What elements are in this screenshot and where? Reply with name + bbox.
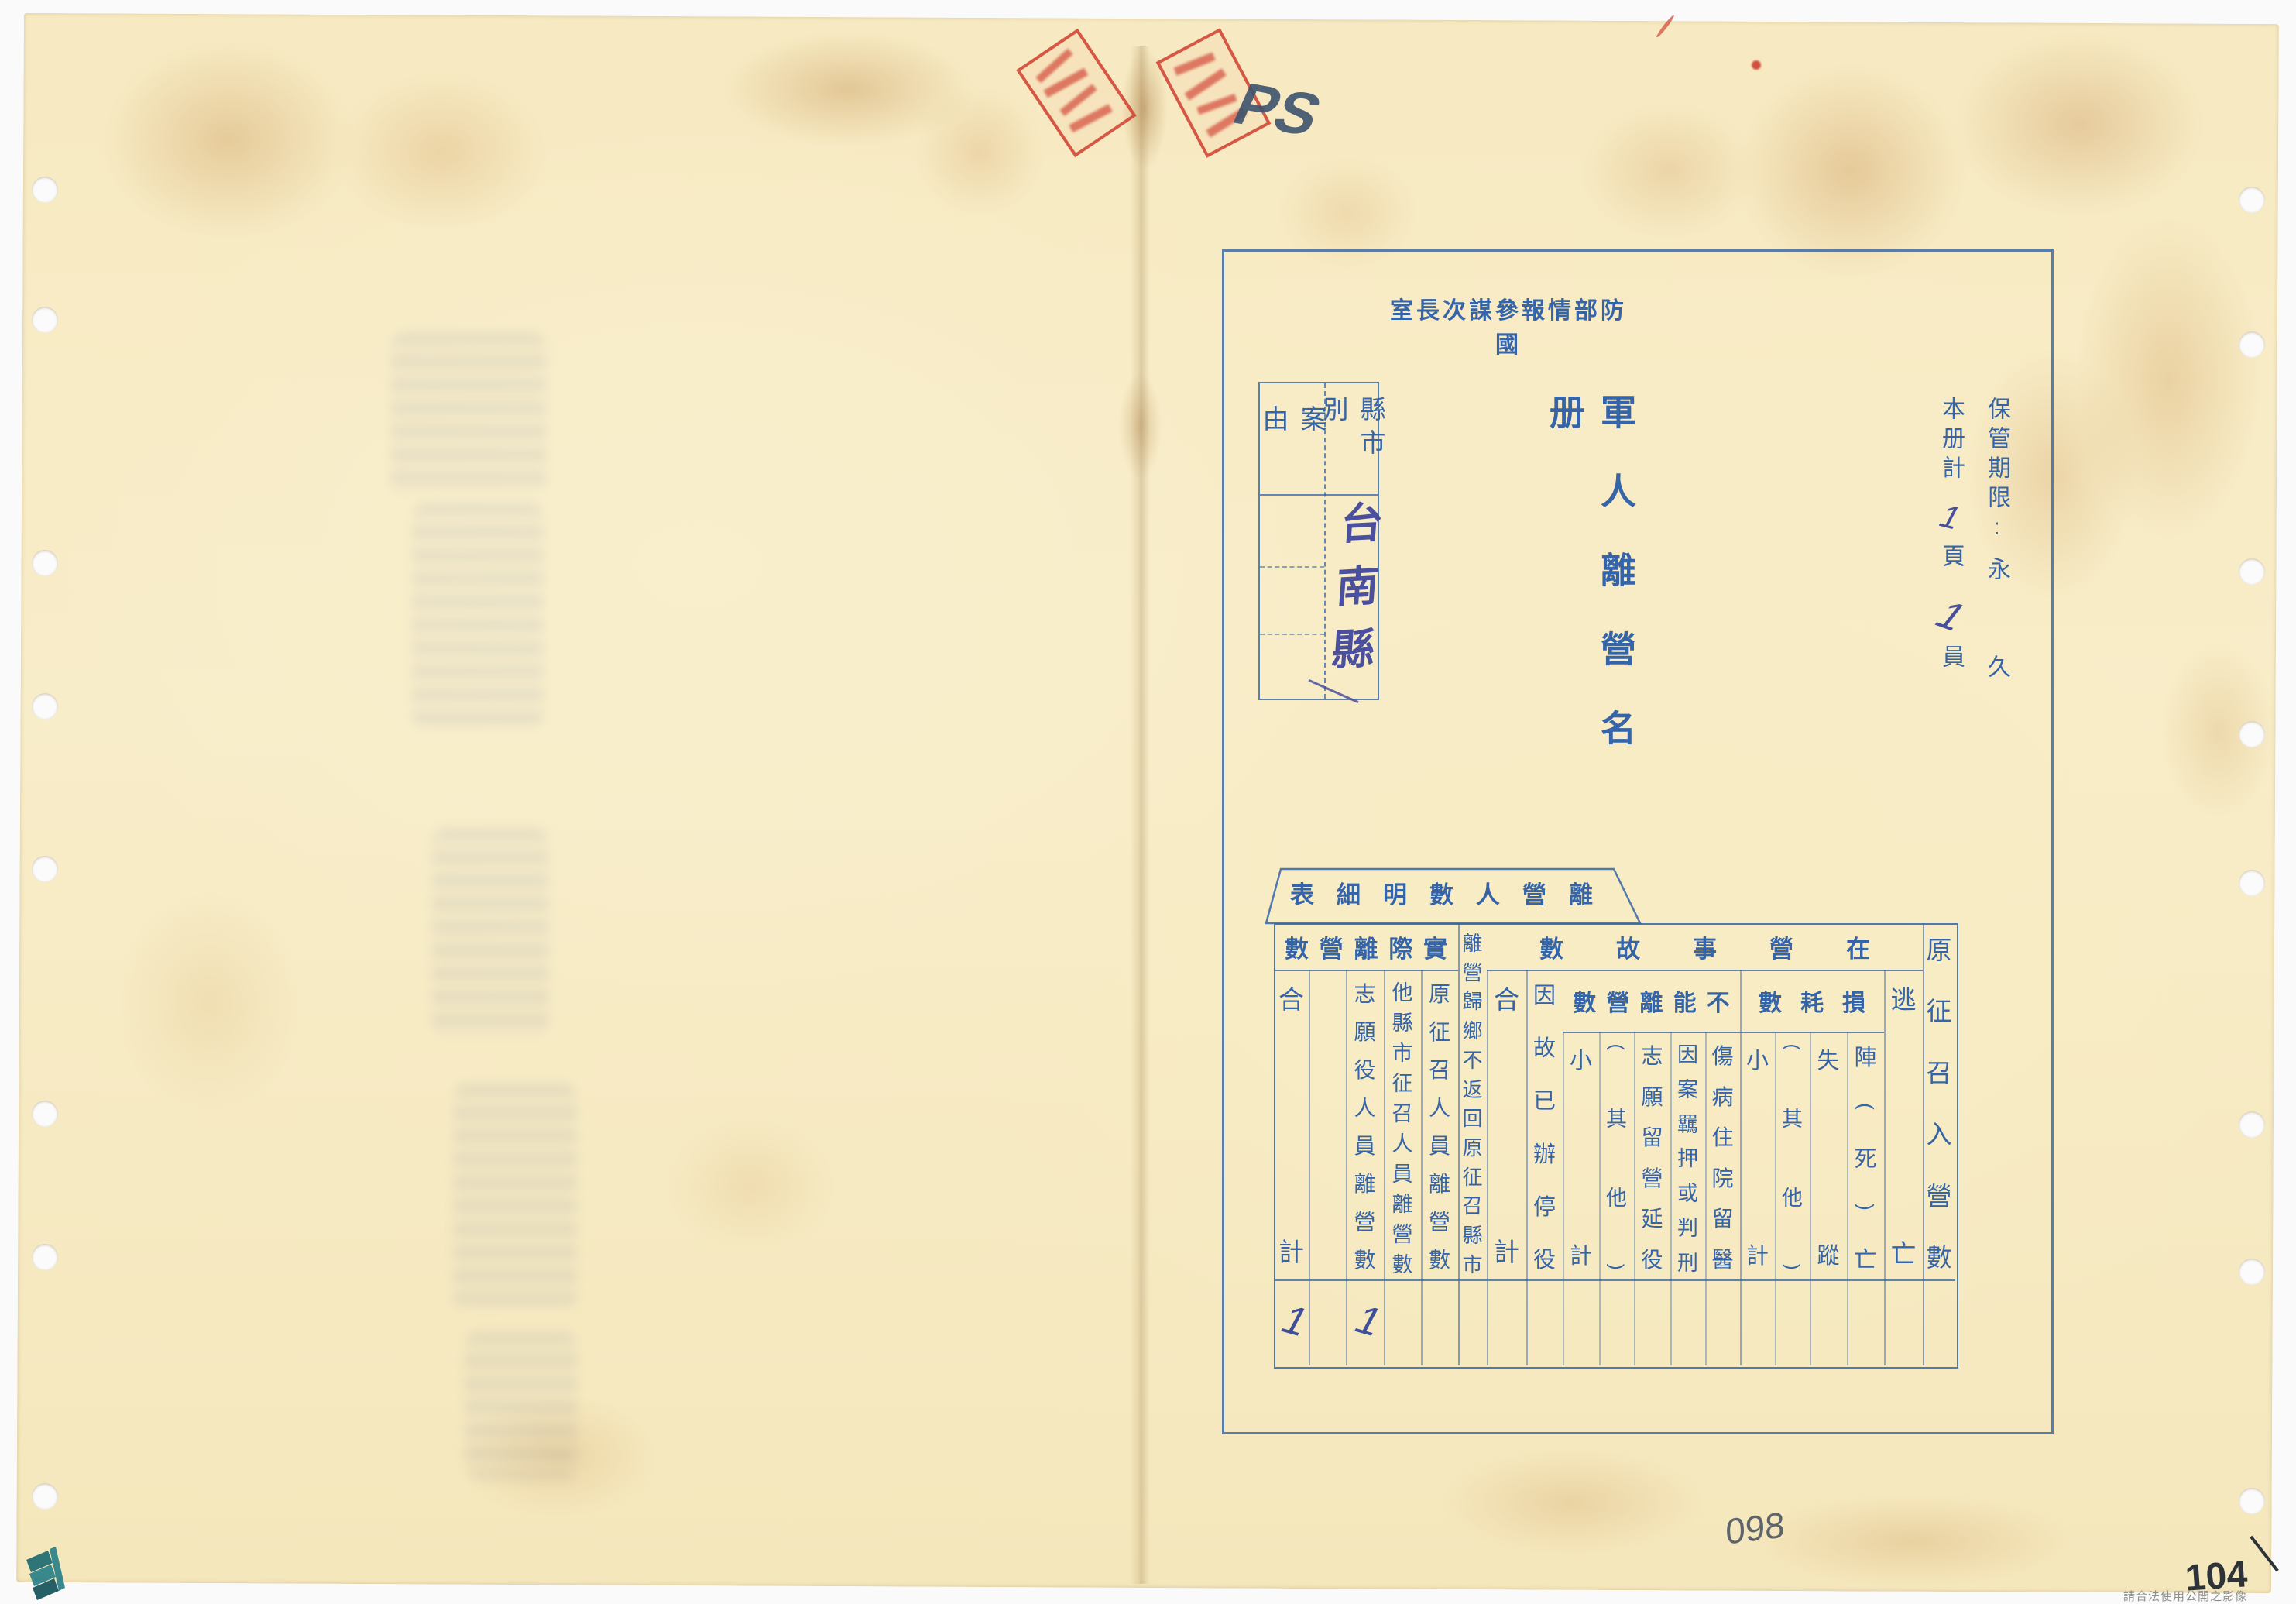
label-char: 蹤 — [1817, 1238, 1839, 1270]
group-header-char: 營 — [1769, 929, 1793, 964]
case-subject-label: 案由 — [1271, 405, 1314, 479]
label-char: 故 — [1533, 1030, 1556, 1063]
label-char: 人 — [1354, 1091, 1375, 1122]
label-char: 他 — [1606, 1181, 1627, 1211]
label-char: 召 — [1392, 1097, 1413, 1127]
label-char: 志 — [1354, 977, 1375, 1008]
label-char: 數 — [1392, 1248, 1413, 1278]
ink-bleed-through — [391, 333, 546, 496]
label-char: 病 — [1711, 1080, 1733, 1111]
label-char: 原 — [1462, 1132, 1482, 1161]
punch-hole — [2239, 187, 2265, 213]
volume-page-unit: 頁 — [1934, 544, 1968, 573]
label-char: 市 — [1462, 1249, 1482, 1278]
punch-hole — [2239, 721, 2265, 747]
label-char: ( — [1785, 1044, 1800, 1050]
label-char: 或 — [1677, 1176, 1698, 1207]
roster-title: 軍人離營名册 — [1569, 393, 1612, 849]
group-header-char: 營 — [1606, 984, 1629, 1018]
label-char: 陣 — [1854, 1039, 1876, 1072]
county-category-label: 縣市別 — [1334, 396, 1370, 486]
county-handwritten-value: 台南縣 — [1324, 500, 1381, 696]
punch-hole — [32, 693, 58, 720]
label-char: 留 — [1711, 1202, 1733, 1233]
table-column-label-cannot-subtotal: 小計 — [1563, 1042, 1599, 1270]
punch-hole — [32, 550, 58, 576]
table-column-label-actual-total: 合計 — [1274, 979, 1309, 1269]
label-char: 失 — [1817, 1042, 1839, 1075]
punch-hole — [32, 856, 58, 882]
label-char: 羈 — [1677, 1108, 1698, 1138]
label-char: 逃 — [1891, 979, 1917, 1016]
ink-bleed-through — [453, 1084, 577, 1309]
punch-hole — [2239, 331, 2265, 358]
county-category-text: 縣市別 — [1315, 396, 1389, 486]
label-char: 亡 — [1891, 1233, 1917, 1270]
label-char: 計 — [1278, 1231, 1304, 1269]
table-column-label-detained: 因案羈押或判刑 — [1670, 1038, 1705, 1276]
group-header-char: 不 — [1707, 984, 1730, 1018]
label-char: 縣 — [1392, 1006, 1413, 1036]
label-char: 離 — [1429, 1167, 1450, 1198]
label-char: ( — [1858, 1103, 1874, 1110]
punch-hole — [32, 1101, 58, 1127]
group-header-char: 際 — [1388, 929, 1412, 964]
label-char: 其 — [1606, 1102, 1627, 1132]
table-column-label-orig-conscript-leave: 原征召人員離營數 — [1421, 977, 1458, 1274]
label-char: 小 — [1570, 1042, 1592, 1075]
table-column-label-returned-home: 離營歸鄉不返回原征召縣市 — [1458, 928, 1487, 1278]
group-header-char: 數 — [1759, 984, 1782, 1018]
label-char: 離 — [1462, 928, 1482, 957]
label-char: 人 — [1429, 1091, 1450, 1122]
label-char: 他 — [1782, 1181, 1803, 1211]
label-char: 征 — [1927, 991, 1952, 1028]
label-char: 住 — [1711, 1121, 1733, 1152]
label-char: 合 — [1278, 979, 1304, 1016]
label-char: 役 — [1354, 1053, 1375, 1084]
table-column-label-hospitalized: 傷病住院留醫 — [1705, 1039, 1740, 1274]
label-char: 計 — [1494, 1231, 1519, 1269]
table-column-label-missing: 失蹤 — [1810, 1042, 1847, 1270]
label-char: 停 — [1533, 1189, 1556, 1221]
volume-person-unit: 員 — [1934, 644, 1968, 674]
label-char: 志 — [1641, 1039, 1663, 1070]
label-char: 召 — [1462, 1190, 1482, 1219]
label-char: 鄉 — [1462, 1015, 1482, 1044]
label-char: 數 — [1927, 1237, 1952, 1274]
label-char: ) — [1609, 1263, 1624, 1269]
label-char: 院 — [1711, 1162, 1733, 1193]
label-char: 市 — [1392, 1036, 1413, 1066]
group-header-char: 營 — [1320, 929, 1344, 964]
label-char: 征 — [1462, 1162, 1482, 1190]
label-char: 小 — [1746, 1042, 1769, 1075]
case-box-rule — [1260, 494, 1378, 496]
group-header-char: 在 — [1846, 929, 1870, 964]
label-char: 縣 — [1462, 1220, 1482, 1249]
scan-canvas: PS 室長次謀參報情部防國 軍人離營名册 保管期限: 永 久 本册計 1 頁 1… — [0, 0, 2296, 1602]
label-char: 醫 — [1711, 1243, 1733, 1274]
label-char: 押 — [1677, 1142, 1698, 1172]
retention-label: 保管期限: — [1979, 397, 2013, 546]
punch-hole — [32, 1244, 58, 1270]
usage-notice-text: 請合法使用公開之影像 — [2123, 1588, 2247, 1604]
label-char: 征 — [1429, 1015, 1450, 1046]
group-header-char: 事 — [1693, 929, 1717, 964]
punch-hole — [32, 177, 58, 203]
label-char: 願 — [1354, 1015, 1375, 1046]
label-char: 員 — [1429, 1129, 1450, 1160]
group-header-char: 離 — [1354, 929, 1378, 964]
label-char: 回 — [1462, 1103, 1482, 1132]
table-value-row-line — [1274, 1279, 1955, 1281]
label-char: 刑 — [1677, 1246, 1698, 1276]
table-column-label-suspended: 因故已辦停役 — [1526, 977, 1563, 1274]
label-char: 原 — [1429, 977, 1450, 1008]
label-char: 辦 — [1533, 1136, 1556, 1169]
label-char: 役 — [1641, 1243, 1663, 1274]
table-group-header-loss: 數耗損 — [1740, 970, 1884, 1033]
label-char: 願 — [1641, 1080, 1663, 1111]
label-char: 歸 — [1462, 986, 1482, 1015]
roster-title-text: 軍人離營名册 — [1539, 393, 1642, 849]
retention-value-2: 久 — [1979, 654, 2013, 684]
group-header-char: 實 — [1423, 929, 1447, 964]
label-char: 營 — [1641, 1162, 1663, 1193]
label-char: 營 — [1429, 1205, 1450, 1236]
archives-watermark-logo — [22, 1537, 79, 1603]
label-char: 營 — [1462, 957, 1482, 986]
table-column-label-battle-death: 陣(死)亡 — [1847, 1039, 1884, 1274]
table-group-header-cannot: 數營離能不 — [1563, 970, 1740, 1033]
case-county-box: 案由 縣市別 台南縣 — [1258, 382, 1379, 700]
label-char: 役 — [1533, 1242, 1556, 1274]
label-char: 因 — [1533, 977, 1556, 1010]
label-char: 員 — [1354, 1129, 1375, 1160]
volume-lead: 本册計 — [1934, 397, 1968, 485]
label-char: 計 — [1570, 1238, 1592, 1270]
label-char: 原 — [1927, 929, 1952, 967]
table-column-label-desertion: 逃亡 — [1884, 979, 1923, 1270]
label-char: 員 — [1392, 1157, 1413, 1187]
label-char: 留 — [1641, 1121, 1663, 1152]
table-column-label-conscripted: 原征召入營數 — [1923, 929, 1955, 1274]
volume-page-count: 1 — [1933, 498, 1968, 536]
label-char: 返 — [1462, 1074, 1482, 1103]
group-header-char: 故 — [1616, 929, 1640, 964]
label-char: 人 — [1392, 1127, 1413, 1157]
label-char: 傷 — [1711, 1039, 1733, 1070]
label-char: 合 — [1494, 979, 1519, 1016]
table-column-label-volunteer-leave: 志願役人員離營數 — [1346, 977, 1384, 1274]
table-column-label-volunteer-stay: 志願留營延役 — [1634, 1039, 1670, 1274]
case-box-rule-dashed — [1260, 634, 1324, 635]
punch-hole — [2239, 1111, 2265, 1138]
label-char: 亡 — [1854, 1242, 1876, 1274]
group-header-char: 數 — [1573, 984, 1596, 1018]
label-char: 征 — [1392, 1066, 1413, 1097]
group-header-char: 數 — [1285, 929, 1309, 964]
label-char: 已 — [1533, 1083, 1556, 1115]
label-char: 離 — [1392, 1187, 1413, 1218]
table-column-label-cannot-other: (其他) — [1599, 1039, 1634, 1274]
label-char: 不 — [1462, 1045, 1482, 1073]
punch-hole — [2239, 1259, 2265, 1285]
ink-bleed-through — [412, 503, 544, 728]
label-char: 營 — [1354, 1205, 1375, 1236]
group-header-char: 能 — [1673, 984, 1697, 1018]
group-header-char: 損 — [1842, 984, 1865, 1018]
label-char: 他 — [1392, 976, 1413, 1006]
punch-hole — [2239, 558, 2265, 585]
label-char: 離 — [1354, 1167, 1375, 1198]
label-char: 計 — [1746, 1238, 1769, 1270]
label-char: 判 — [1677, 1211, 1698, 1242]
label-char: ) — [1858, 1204, 1874, 1211]
label-char: 因 — [1677, 1038, 1698, 1068]
label-char: 死 — [1854, 1141, 1876, 1173]
punch-hole — [2239, 1488, 2265, 1514]
table-group-header-actual: 數營離際實 — [1274, 923, 1458, 971]
ink-bleed-through — [465, 1332, 577, 1479]
label-char: 營 — [1392, 1218, 1413, 1248]
punch-hole — [2239, 870, 2265, 896]
case-box-rule-dashed — [1260, 566, 1324, 568]
page-fold-crease — [1130, 46, 1150, 1584]
retention-period: 保管期限: 永 久 — [1979, 397, 2013, 684]
volume-summary: 本册計 1 頁 1 員 — [1933, 397, 1968, 674]
ink-bleed-through — [432, 829, 548, 1038]
label-char: 其 — [1782, 1102, 1803, 1132]
table-title: 表細明數人營離 — [1289, 875, 1617, 910]
pencil-page-number: 098 — [1725, 1503, 1785, 1553]
label-char: 召 — [1927, 1053, 1952, 1090]
table-column-label-loss-subtotal: 小計 — [1740, 1042, 1775, 1270]
label-char: ( — [1609, 1044, 1624, 1050]
label-char: 入 — [1927, 1114, 1952, 1151]
label-char: 案 — [1677, 1073, 1698, 1103]
group-header-char: 離 — [1639, 984, 1663, 1018]
label-char: 延 — [1641, 1202, 1663, 1233]
label-char: 數 — [1429, 1243, 1450, 1274]
label-char: 營 — [1927, 1176, 1952, 1213]
label-char: 召 — [1429, 1053, 1450, 1084]
group-header-char: 耗 — [1800, 984, 1824, 1018]
table-column-label-incamp-total: 合計 — [1487, 979, 1526, 1269]
group-header-char: 數 — [1539, 929, 1563, 964]
punch-hole — [32, 307, 58, 333]
table-column-label-loss-other: (其他) — [1775, 1039, 1810, 1274]
label-char: 數 — [1354, 1243, 1375, 1274]
agency-title: 室長次謀參報情部防國 — [1381, 291, 1636, 359]
punch-hole — [32, 1483, 58, 1510]
label-char: ) — [1785, 1263, 1800, 1269]
table-group-header-incamp: 數故事營在 — [1487, 923, 1923, 971]
retention-value-1: 永 — [1979, 557, 2013, 586]
table-column-label-other-county-leave: 他縣市征召人員離營數 — [1384, 976, 1421, 1276]
